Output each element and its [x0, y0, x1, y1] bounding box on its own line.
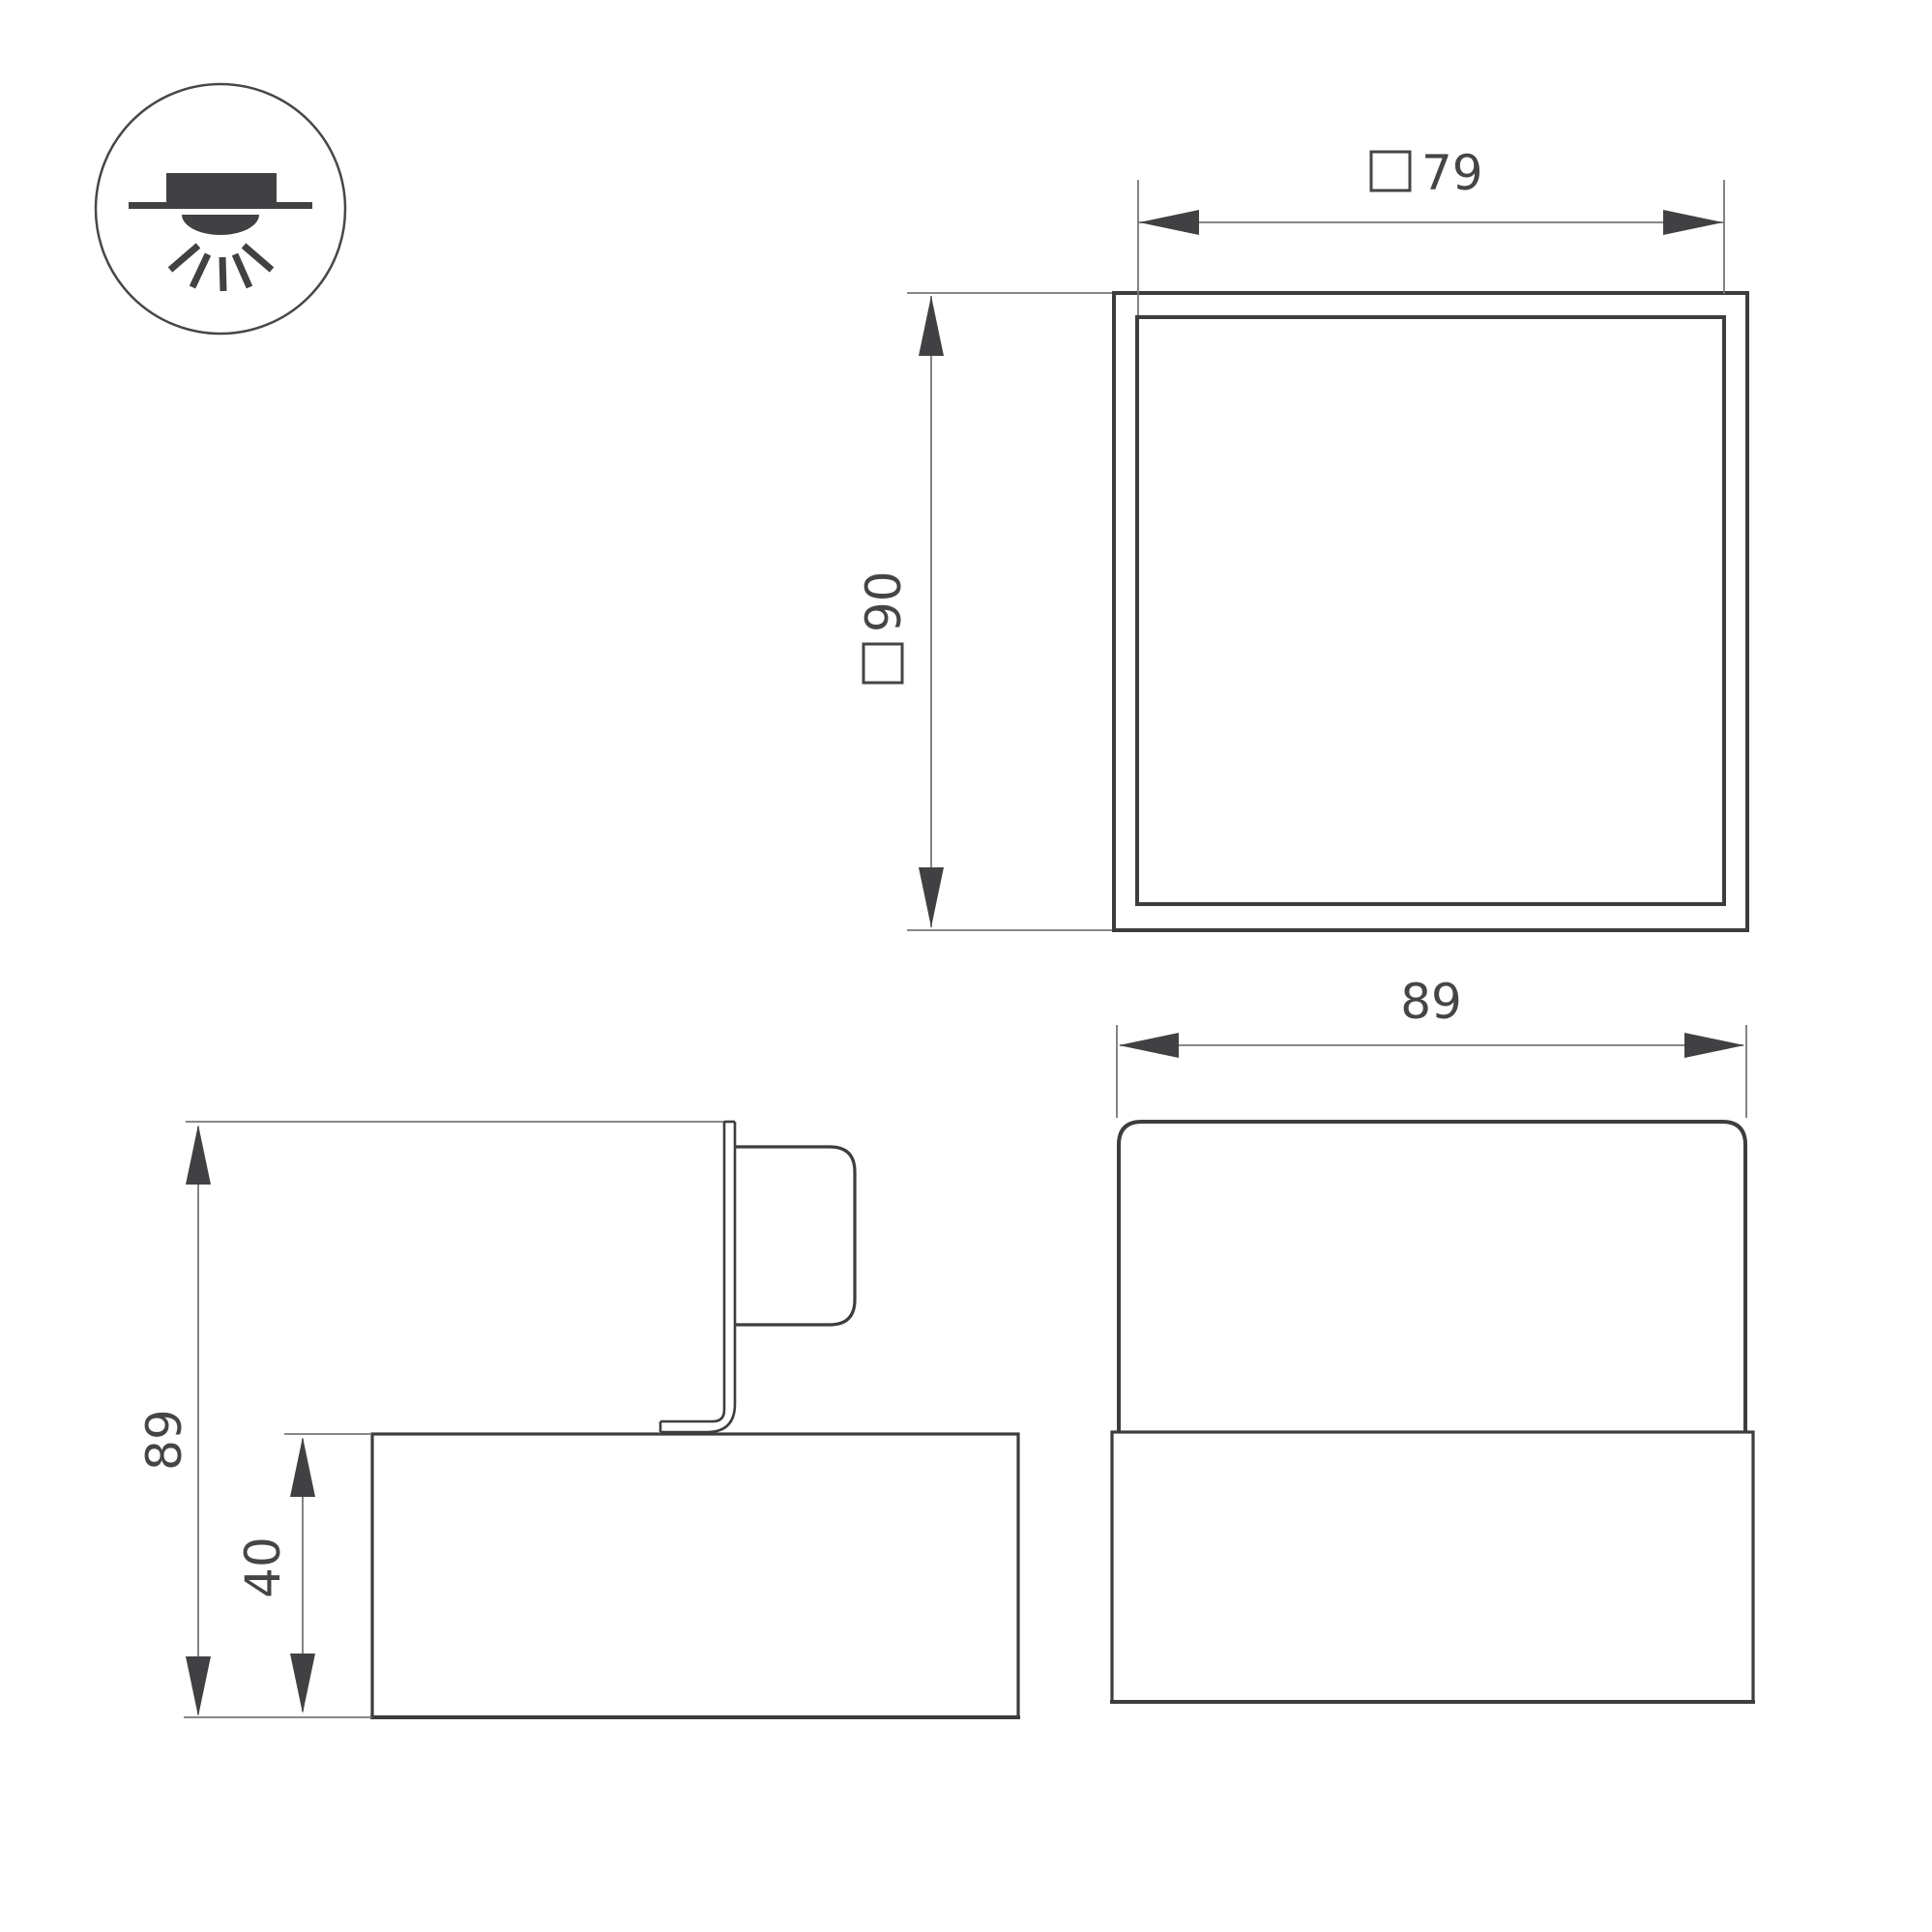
arrowhead-down [186, 1656, 211, 1716]
aperture-square [1137, 317, 1724, 904]
arrowhead-left [1139, 210, 1199, 235]
dimension-base-40: 40 [235, 1434, 370, 1713]
arrowhead-right [1663, 210, 1723, 235]
rotated-label-group: 40 [235, 1537, 291, 1598]
front-view: 89 [1110, 974, 1755, 1702]
base-body [1112, 1432, 1753, 1702]
drawing-svg: 79 90 [0, 0, 1932, 1932]
clip-block [735, 1147, 855, 1325]
arrowhead-up [186, 1125, 211, 1185]
arrowhead-up [919, 296, 944, 356]
dimension-size-90: 90 [856, 293, 1112, 930]
fixture-body [166, 173, 277, 202]
arrowhead-up [290, 1437, 315, 1497]
dimension-label-89-width: 89 [1400, 974, 1462, 1030]
arrowhead-right [1684, 1033, 1744, 1058]
side-view: 89 40 [136, 1122, 1020, 1717]
dimension-height-89: 89 [136, 1125, 211, 1716]
dimension-label-89: 89 [136, 1409, 192, 1471]
dimension-label-40: 40 [235, 1537, 291, 1598]
bracket-inner-line [660, 1122, 724, 1421]
top-view: 79 90 [856, 145, 1747, 930]
rotated-label-group: 90 [856, 571, 912, 683]
dimension-label-90: 90 [856, 571, 912, 632]
outer-square [1114, 293, 1747, 930]
mount-type-icon [96, 84, 345, 334]
square-symbol [1371, 152, 1410, 190]
lamp-dome [182, 215, 259, 235]
base-body [372, 1434, 1018, 1717]
ceiling-line [129, 202, 312, 209]
mounting-bracket [660, 1122, 855, 1432]
dimension-label-79: 79 [1421, 145, 1483, 201]
head-body [1119, 1122, 1745, 1432]
arrowhead-left [1119, 1033, 1179, 1058]
dimension-drawing-canvas: 79 90 [0, 0, 1932, 1932]
light-rays-icon [170, 246, 272, 291]
arrowhead-down [290, 1654, 315, 1713]
square-symbol [864, 644, 902, 683]
dimension-aperture-79: 79 [1138, 145, 1724, 315]
arrowhead-down [919, 867, 944, 927]
dimension-width-89: 89 [1117, 974, 1746, 1118]
rotated-label-group: 89 [136, 1409, 192, 1471]
